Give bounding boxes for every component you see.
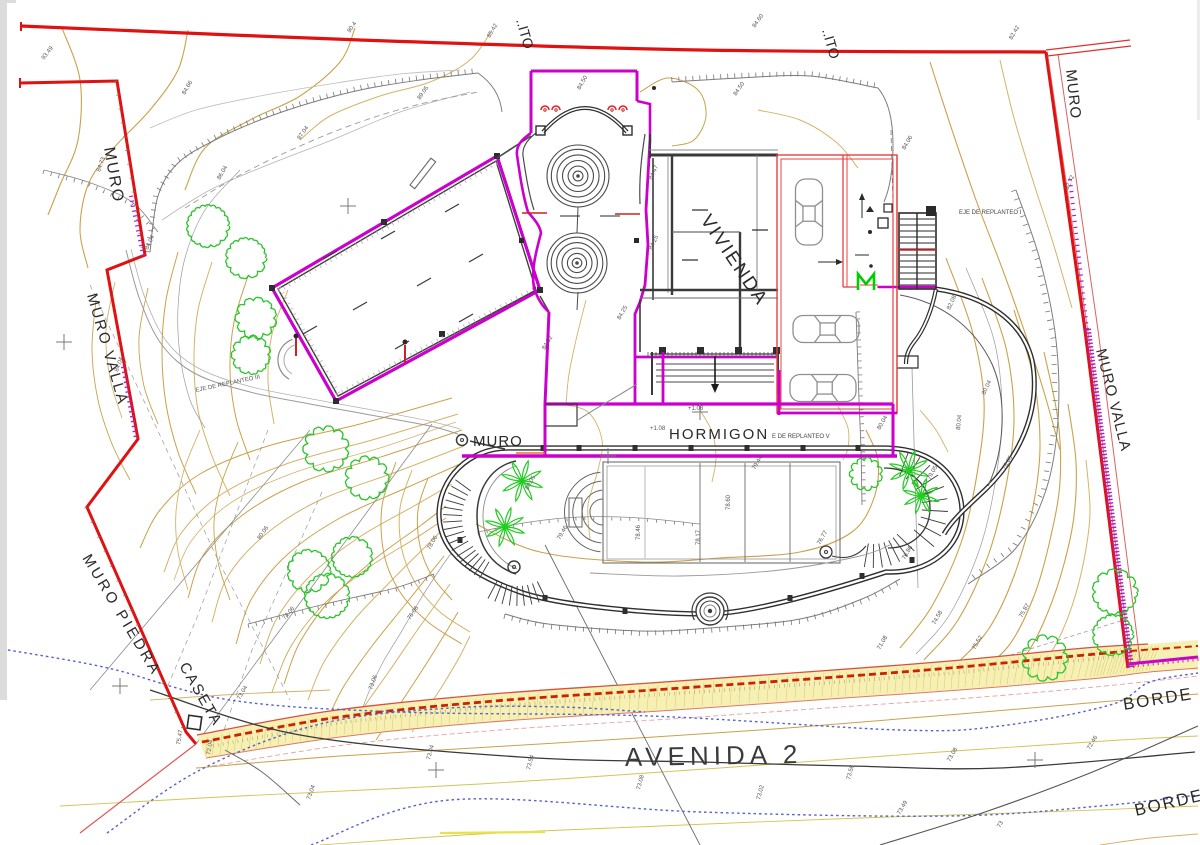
svg-text:78.17: 78.17: [696, 529, 702, 545]
svg-text:HORMIGON: HORMIGON: [669, 426, 769, 443]
svg-text:78.60: 78.60: [726, 494, 732, 510]
svg-text:E DE REPLANTEO V: E DE REPLANTEO V: [772, 434, 830, 440]
svg-text:+1.08: +1.08: [650, 426, 666, 432]
svg-text:MURO: MURO: [473, 433, 523, 450]
svg-text:78.46: 78.46: [636, 524, 642, 540]
svg-text:+1.08: +1.08: [688, 406, 704, 412]
svg-text:EJE DE REPLANTEO I: EJE DE REPLANTEO I: [959, 210, 1022, 216]
svg-text:AVENIDA 2: AVENIDA 2: [625, 739, 803, 772]
